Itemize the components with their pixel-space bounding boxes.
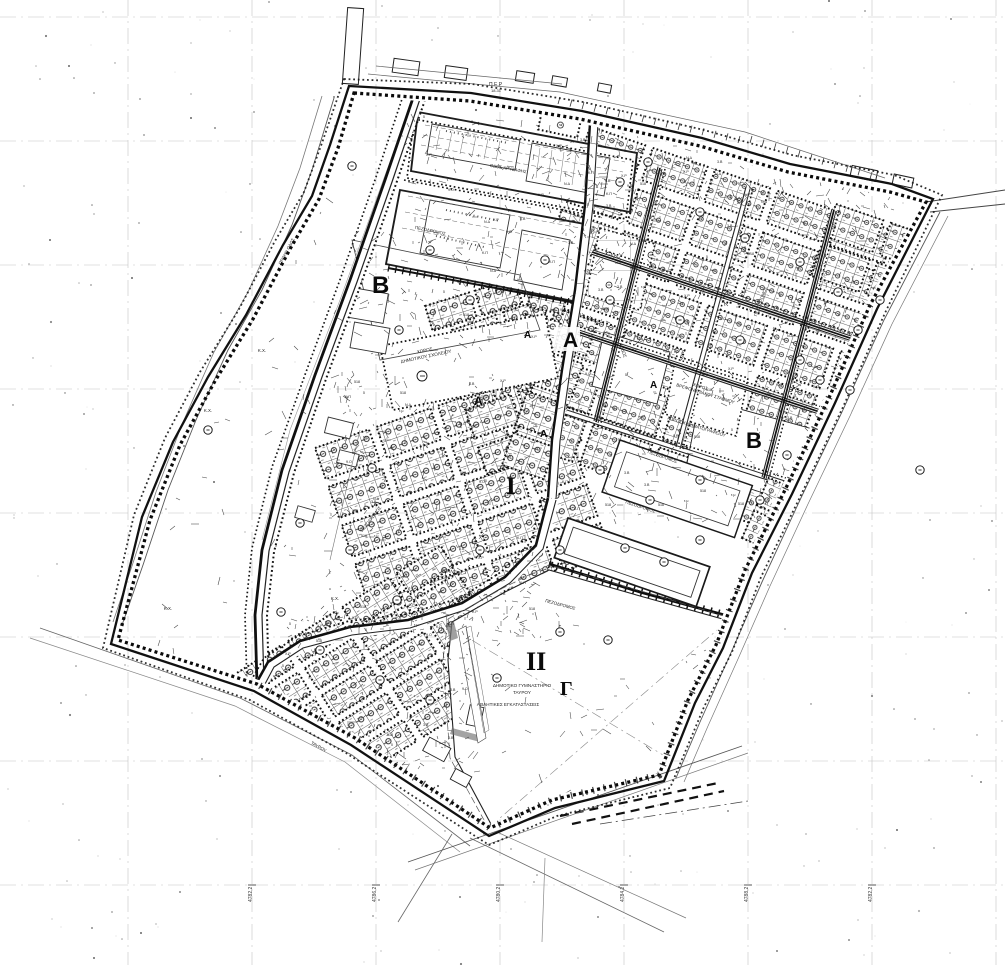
svg-text:δ: δ [443,290,445,294]
svg-text:Κ.Π: Κ.Π [537,308,543,312]
svg-text:518: 518 [460,471,466,475]
svg-text:9.Ο: 9.Ο [560,308,566,312]
svg-text:Ν.Δ: Ν.Δ [708,290,715,294]
svg-text:3.Β: 3.Β [580,138,586,142]
svg-text:τ.μ: τ.μ [731,493,736,497]
svg-text:Κ.Π: Κ.Π [436,625,442,629]
svg-text:9.Ο: 9.Ο [506,230,512,234]
svg-text:δ: δ [663,268,665,272]
svg-text:Κ.Π: Κ.Π [562,480,568,484]
svg-text:Ν.Δ: Ν.Δ [630,242,637,246]
svg-text:518: 518 [638,239,644,243]
svg-text:518: 518 [658,503,664,507]
svg-text:Ν.Δ: Ν.Δ [505,454,512,458]
svg-text:3.Β: 3.Β [588,334,594,338]
svg-text:9.Ο: 9.Ο [352,616,358,620]
svg-text:τ.μ: τ.μ [684,499,689,503]
svg-text:9.Ο: 9.Ο [585,372,591,376]
svg-text:4780.2: 4780.2 [496,886,502,902]
svg-text:3.Β: 3.Β [617,285,623,289]
svg-text:518: 518 [640,182,646,186]
svg-text:3.Β: 3.Β [497,414,503,418]
svg-text:δ: δ [624,149,626,153]
svg-text:Χ.Ρ: Χ.Ρ [590,231,596,235]
svg-text:Ν.Δ: Ν.Δ [564,182,571,186]
svg-text:518: 518 [400,391,406,395]
svg-text:Κ.Π: Κ.Π [520,581,526,585]
svg-text:9.Ο: 9.Ο [720,317,726,321]
svg-text:9.Ο: 9.Ο [460,422,466,426]
svg-text:518: 518 [748,252,754,256]
svg-text:Χ.Ρ: Χ.Ρ [426,153,432,157]
svg-text:Χ.Ρ: Χ.Ρ [621,174,627,178]
svg-text:A: A [650,380,657,391]
svg-text:δ: δ [400,614,402,618]
svg-text:τ.μ: τ.μ [674,350,679,354]
svg-text:Κ.Π: Κ.Π [574,507,580,511]
svg-text:τ.μ: τ.μ [352,451,357,455]
svg-text:3.Β: 3.Β [703,373,709,377]
svg-text:Ν.Δ: Ν.Δ [707,278,714,282]
svg-text:Ν.Δ: Ν.Δ [787,334,794,338]
svg-text:δ: δ [423,115,425,119]
svg-text:Ν.Δ: Ν.Δ [715,172,722,176]
svg-text:Κ.Π: Κ.Π [588,171,594,175]
svg-text:δ: δ [282,664,284,668]
svg-text:τ.μ: τ.μ [736,181,741,185]
svg-text:δ: δ [625,373,627,377]
svg-text:Κ.Π: Κ.Π [613,407,619,411]
svg-text:K.X.: K.X. [331,596,339,601]
svg-text:Κ.Π: Κ.Π [549,260,555,264]
svg-text:518: 518 [603,307,609,311]
svg-text:518: 518 [700,489,706,493]
svg-text:Κ.Π: Κ.Π [663,349,669,353]
svg-text:3.Β: 3.Β [741,246,747,250]
svg-text:A: A [563,329,578,352]
svg-text:Ν.Δ: Ν.Δ [484,220,491,224]
svg-text:Χ.Ρ: Χ.Ρ [285,652,291,656]
svg-text:δ: δ [522,549,524,553]
svg-text:K.X.: K.X. [258,348,266,353]
svg-text:Χ.Ρ: Χ.Ρ [368,620,374,624]
svg-text:518: 518 [694,435,700,439]
svg-text:Γ: Γ [560,678,573,700]
svg-text:II: II [526,647,546,676]
svg-text:δ: δ [779,294,781,298]
svg-text:3.Β: 3.Β [448,736,454,740]
svg-text:τ.μ: τ.μ [620,324,625,328]
svg-text:518: 518 [387,733,393,737]
svg-text:Ν.Δ: Ν.Δ [637,337,644,341]
svg-text:518: 518 [352,509,358,513]
svg-text:τ.μ: τ.μ [399,409,404,413]
svg-text:δ: δ [506,432,508,436]
svg-text:Χ.Ρ: Χ.Ρ [447,582,453,586]
svg-text:Ν.Δ: Ν.Δ [373,497,380,501]
svg-text:B: B [746,428,762,453]
svg-text:A: A [540,429,547,440]
svg-text:τ.μ: τ.μ [505,405,510,409]
svg-text:Ν.Δ: Ν.Δ [406,501,413,505]
svg-text:ΔΗΜΟΤΙΚΟ ΓΥΜΝΑΣΤΗΡΙΟ: ΔΗΜΟΤΙΚΟ ΓΥΜΝΑΣΤΗΡΙΟ [493,683,552,688]
svg-text:Χ.Ρ: Χ.Ρ [493,218,499,222]
svg-text:δ: δ [731,428,733,432]
svg-text:Χ.Ρ: Χ.Ρ [556,144,562,148]
svg-text:4782.2: 4782.2 [868,886,874,902]
svg-text:3.Β: 3.Β [568,241,574,245]
svg-text:B: B [372,272,389,299]
svg-text:9.Ο: 9.Ο [426,633,432,637]
svg-text:3.Β: 3.Β [644,483,650,487]
svg-text:Χ.Ρ: Χ.Ρ [626,340,632,344]
svg-text:Ν.Δ: Ν.Δ [490,269,497,273]
svg-text:δ: δ [363,391,365,395]
svg-text:3.Β: 3.Β [450,688,456,692]
svg-text:τ.μ: τ.μ [670,442,675,446]
svg-text:3.Β: 3.Β [500,592,506,596]
svg-text:9.Ο: 9.Ο [813,385,819,389]
svg-text:Χ.Ρ: Χ.Ρ [683,170,689,174]
svg-text:Χ.Ρ: Χ.Ρ [744,193,750,197]
svg-text:3.Β: 3.Β [598,288,604,292]
svg-text:Χ.Ρ: Χ.Ρ [536,447,542,451]
svg-text:3.Β: 3.Β [717,160,723,164]
svg-text:τ.μ: τ.μ [363,435,368,439]
svg-text:518: 518 [463,313,469,317]
svg-text:Ν.Δ: Ν.Δ [686,156,693,160]
svg-text:Κ.Π: Κ.Π [630,198,636,202]
svg-text:δ: δ [743,182,745,186]
svg-text:9.Ο: 9.Ο [346,460,352,464]
svg-text:δ: δ [569,222,571,226]
svg-text:τ.μ: τ.μ [428,538,433,542]
svg-text:Χ.Ρ: Χ.Ρ [500,379,506,383]
svg-text:518: 518 [316,639,322,643]
svg-text:A: A [524,330,531,341]
svg-text:Κ.Π: Κ.Π [345,395,351,399]
svg-text:Χ.Ρ: Χ.Ρ [632,348,638,352]
svg-text:9.Ο: 9.Ο [462,687,468,691]
svg-text:3.Β: 3.Β [787,416,793,420]
svg-text:3.Β: 3.Β [741,290,747,294]
svg-text:τ.μ: τ.μ [870,219,875,223]
svg-text:4784.2: 4784.2 [620,886,626,902]
svg-text:Χ.Ρ: Χ.Ρ [538,193,544,197]
svg-text:518: 518 [326,621,332,625]
svg-text:3.Β: 3.Β [520,217,526,221]
svg-text:K.X.: K.X. [164,606,172,611]
svg-text:τ.μ: τ.μ [615,310,620,314]
svg-text:518: 518 [605,503,611,507]
svg-text:9.Ο: 9.Ο [821,273,827,277]
svg-text:9.Ο: 9.Ο [448,188,454,192]
svg-text:4786.2: 4786.2 [372,886,378,902]
svg-text:τ.μ: τ.μ [374,534,379,538]
svg-text:I: I [506,473,516,500]
svg-text:9.Ο: 9.Ο [379,473,385,477]
svg-text:δ: δ [289,622,291,626]
svg-text:9.Ο: 9.Ο [479,480,485,484]
svg-text:δ: δ [485,479,487,483]
svg-text:518: 518 [738,502,744,506]
svg-text:518: 518 [361,534,367,538]
svg-text:9.Ο: 9.Ο [673,434,679,438]
svg-text:Κ.Π: Κ.Π [517,536,523,540]
svg-text:518: 518 [529,607,535,611]
svg-text:δ: δ [706,255,708,259]
svg-text:Ν.Δ: Ν.Δ [761,200,768,204]
svg-text:δ: δ [808,257,810,261]
svg-text:Χ.Ρ: Χ.Ρ [409,603,415,607]
svg-text:Χ.Ρ: Χ.Ρ [531,335,537,339]
svg-text:3.Β: 3.Β [624,471,630,475]
svg-text:δ: δ [391,743,393,747]
svg-text:3.Β: 3.Β [469,382,475,386]
svg-text:Ν.Δ: Ν.Δ [597,337,604,341]
svg-text:δ: δ [751,322,753,326]
svg-text:τ.μ: τ.μ [471,433,476,437]
svg-text:τ.μ: τ.μ [404,672,409,676]
svg-text:3.Β: 3.Β [423,723,429,727]
svg-text:Κ.Π: Κ.Π [606,192,612,196]
svg-text:Χ.Ρ: Χ.Ρ [472,610,478,614]
svg-text:δ: δ [485,549,487,553]
svg-text:ΑΘΛΗΤΙΚΕΣ ΕΓΚΑΤΑΣΤΑΣΕΙΣ: ΑΘΛΗΤΙΚΕΣ ΕΓΚΑΤΑΣΤΑΣΕΙΣ [477,702,540,707]
svg-text:9.Ο: 9.Ο [574,214,580,218]
svg-text:Κ.Π: Κ.Π [448,622,454,626]
svg-text:ΤΑΥΡΟΥ: ΤΑΥΡΟΥ [513,690,531,695]
svg-text:Χ.Ρ: Χ.Ρ [684,294,690,298]
svg-text:3.Β: 3.Β [727,224,733,228]
svg-text:τ.μ: τ.μ [414,623,419,627]
svg-text:9.Ο: 9.Ο [633,224,639,228]
svg-text:Κ.Π: Κ.Π [482,251,488,255]
svg-text:518: 518 [465,408,471,412]
svg-text:τ.μ: τ.μ [641,285,646,289]
svg-text:518: 518 [360,605,366,609]
svg-text:Χ.Ρ: Χ.Ρ [728,367,734,371]
svg-text:δ: δ [854,319,856,323]
svg-text:δ: δ [358,570,360,574]
svg-text:δ: δ [365,628,367,632]
svg-text:3.Β: 3.Β [605,179,611,183]
svg-text:K.X.: K.X. [204,408,212,413]
svg-text:Ν.Δ: Ν.Δ [615,261,622,265]
svg-text:4788.2: 4788.2 [744,886,750,902]
svg-text:Χ.Ρ: Χ.Ρ [317,624,323,628]
svg-text:3.Β: 3.Β [459,547,465,551]
svg-text:9.Ο: 9.Ο [627,184,633,188]
svg-text:518: 518 [354,380,360,384]
svg-text:τ.μ: τ.μ [616,437,621,441]
svg-text:A: A [474,394,483,408]
svg-text:Ν.Δ: Ν.Δ [414,557,421,561]
svg-text:Ν.Δ: Ν.Δ [405,403,412,407]
svg-text:3.Β: 3.Β [437,492,443,496]
svg-text:3.Β: 3.Β [653,258,659,262]
svg-text:Χ.Ρ: Χ.Ρ [478,556,484,560]
svg-text:Χ.Ρ: Χ.Ρ [570,140,576,144]
svg-text:4782.2: 4782.2 [248,886,254,902]
svg-text:3.Β: 3.Β [606,204,612,208]
